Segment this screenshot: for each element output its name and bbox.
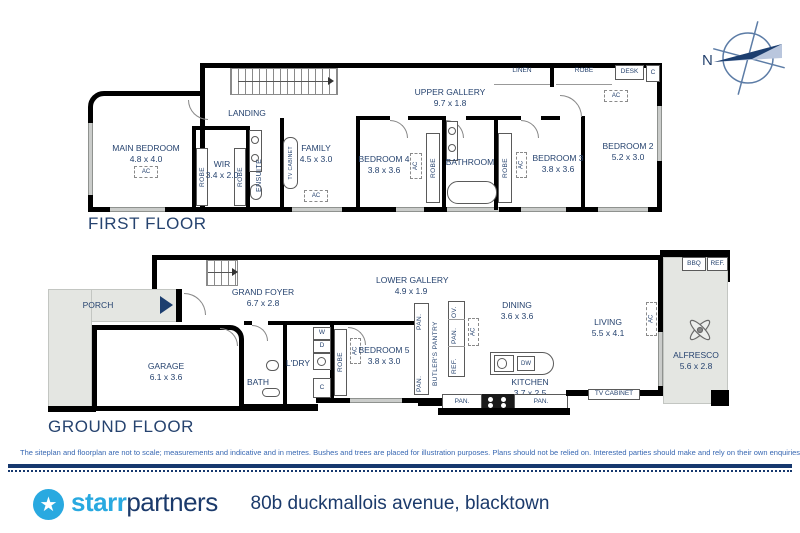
room-dims: 3.4 x 2.0 (200, 170, 244, 181)
laundry-tub-basin (317, 357, 326, 366)
wall (541, 116, 560, 120)
ac-unit: AC (468, 318, 479, 346)
wall (660, 250, 730, 257)
room-label-lower-gallery: LOWER GALLERY 4.9 x 1.9 (376, 275, 446, 296)
room-name: BEDROOM 5 (352, 345, 416, 356)
pan-label: PAN. (451, 322, 458, 344)
star-icon: ★ (40, 495, 58, 515)
closet-front (556, 84, 612, 85)
room-label-family: FAMILY 4.5 x 3.0 (286, 143, 346, 164)
starr-partners-logo-icon: ★ (33, 489, 64, 520)
wall (192, 126, 250, 130)
window (88, 123, 93, 195)
wall (438, 408, 570, 415)
room-label-wir: WIR 3.4 x 2.0 (200, 159, 244, 180)
window (110, 207, 165, 212)
room-label-porch: PORCH (70, 300, 126, 311)
room-label-grand-foyer: GRAND FOYER 6.7 x 2.8 (228, 287, 298, 308)
shelf-divider (448, 319, 465, 320)
robe-label: ROBE (430, 158, 437, 178)
robe-label: ROBE (502, 158, 509, 178)
room-dims: 4.8 x 4.0 (96, 154, 196, 165)
room-name: KITCHEN (498, 377, 562, 388)
wall (408, 116, 442, 120)
burner (501, 397, 506, 402)
bedroom5-robe: ROBE (334, 329, 347, 396)
property-address: 80b duckmallois avenue, blacktown (230, 493, 570, 515)
bbq: BBQ (682, 257, 706, 271)
room-label-landing: LANDING (217, 108, 277, 119)
room-label-ensuite: ENSUITE (256, 132, 263, 192)
tv-cabinet-gf: TV CABINET (588, 389, 640, 400)
window (598, 207, 648, 212)
c-label: C (320, 385, 325, 392)
bathtub (447, 181, 497, 204)
pan-label: PAN. (416, 368, 423, 392)
linen-label: LINEN (494, 68, 550, 75)
pan-label: PAN. (534, 399, 549, 406)
wall (466, 116, 521, 120)
burner (488, 397, 493, 402)
entry-arrow (160, 296, 173, 314)
oven-label: OV. (451, 303, 458, 318)
room-name: ALFRESCO (666, 350, 726, 361)
window (521, 207, 566, 212)
compass: N (702, 16, 792, 98)
room-label-bath: BATH (240, 377, 276, 388)
room-label-living: LIVING 5.5 x 4.1 (580, 317, 636, 338)
footer-rule-dotted (8, 470, 792, 472)
stairs-arrow (232, 268, 238, 276)
room-label-ldry: L'DRY (283, 358, 313, 369)
room-label-alfresco: ALFRESCO 5.6 x 2.8 (666, 350, 726, 371)
bedroom3-robe: ROBE (498, 133, 512, 203)
room-label-main-bedroom: MAIN BEDROOM 4.8 x 4.0 (96, 143, 196, 164)
room-label-bedroom4: BEDROOM 4 3.8 x 3.6 (355, 154, 413, 175)
w-label: W (319, 330, 325, 337)
desk-label: DESK (621, 69, 639, 76)
ac-unit: AC (304, 190, 328, 202)
room-label-bedroom3: BEDROOM 3 3.8 x 3.6 (530, 153, 586, 174)
brand-partners: partners (126, 487, 217, 517)
ref-label: REF. (710, 261, 724, 268)
room-name: GRAND FOYER (228, 287, 298, 298)
closet-c: C (313, 378, 331, 398)
sink-bowl (497, 358, 507, 369)
floorplan-page: N ROBE ROBE ROBE ROBE LINEN ROBE DESK C (0, 0, 800, 533)
compass-graphic (702, 16, 792, 98)
room-dims: 3.8 x 3.6 (355, 165, 413, 176)
room-name: BEDROOM 2 (596, 141, 660, 152)
room-dims: 3.6 x 3.6 (490, 311, 544, 322)
tv-cabinet-label: TV CABINET (595, 391, 633, 398)
stairs-direction-line (238, 81, 330, 82)
room-dims: 3.8 x 3.0 (352, 356, 416, 367)
room-name: DINING (490, 300, 544, 311)
room-name: LOWER GALLERY (376, 275, 446, 286)
ac-unit: AC (134, 166, 158, 178)
wall (360, 116, 390, 120)
pan-label: PAN. (416, 306, 423, 330)
stairs-arrow (328, 77, 334, 85)
desk: DESK (615, 65, 644, 80)
closet-front (494, 84, 550, 85)
room-name: WIR (200, 159, 244, 170)
washer-cupboard: W (313, 327, 331, 340)
ac-unit: AC (646, 302, 657, 336)
c-label: C (651, 70, 656, 77)
window (396, 207, 424, 212)
wall (48, 406, 96, 412)
wall (711, 390, 729, 406)
door-arc (252, 325, 268, 341)
d-label: D (320, 343, 325, 350)
room-dims: 4.5 x 3.0 (286, 154, 346, 165)
footer-rule (8, 464, 792, 468)
room-dims: 6.1 x 3.6 (134, 372, 198, 383)
room-label-butlers-pantry: BUTLER'S PANTRY (432, 312, 439, 386)
room-label-dining: DINING 3.6 x 3.6 (490, 300, 544, 321)
entry-door-arc (184, 293, 206, 315)
room-label-bathroom: BATHROOM (442, 157, 498, 168)
compass-north-label: N (702, 52, 713, 69)
window (350, 398, 402, 403)
room-name: BEDROOM 4 (355, 154, 413, 165)
room-dims: 9.7 x 1.8 (408, 98, 492, 109)
ac-unit: AC (516, 152, 527, 178)
room-dims: 5.5 x 4.1 (580, 328, 636, 339)
ref-label: REF. (451, 350, 458, 374)
bath-basin (266, 360, 279, 371)
room-dims: 5.6 x 2.8 (666, 361, 726, 372)
dryer-cupboard: D (313, 340, 331, 353)
room-name: UPPER GALLERY (408, 87, 492, 98)
room-label-garage: GARAGE 6.1 x 3.6 (134, 361, 198, 382)
wall (176, 289, 182, 322)
room-label-bedroom2: BEDROOM 2 5.2 x 3.0 (596, 141, 660, 162)
dw-label: DW (521, 361, 531, 367)
wall (244, 404, 318, 411)
room-label-upper-gallery: UPPER GALLERY 9.7 x 1.8 (408, 87, 492, 108)
shelf-divider (448, 346, 465, 347)
ac-unit: AC (604, 90, 628, 102)
stairs-direction-line (208, 272, 234, 273)
room-name: GARAGE (134, 361, 198, 372)
room-label-bedroom5: BEDROOM 5 3.8 x 3.0 (352, 345, 416, 366)
first-floor-title: FIRST FLOOR (88, 214, 207, 234)
robe-label: ROBE (337, 352, 344, 372)
room-dims: 3.8 x 3.6 (530, 164, 586, 175)
vanity-basin (448, 127, 456, 135)
ground-floor-title: GROUND FLOOR (48, 417, 194, 437)
bedroom4-robe: ROBE (426, 133, 440, 203)
disclaimer-text: The siteplan and floorplan are not to sc… (20, 448, 780, 457)
brand-starr: starr (71, 487, 126, 517)
wall (550, 63, 554, 87)
room-dims: 6.7 x 2.8 (228, 298, 298, 309)
room-name: MAIN BEDROOM (96, 143, 196, 154)
bbq-label: BBQ (687, 261, 701, 268)
room-name: LIVING (580, 317, 636, 328)
pan-label: PAN. (455, 399, 470, 406)
robe-top-label: ROBE (556, 68, 612, 75)
dishwasher: DW (517, 356, 535, 371)
vanity-basin (448, 144, 456, 152)
room-name: BEDROOM 3 (530, 153, 586, 164)
starr-partners-logo: starrpartners (71, 487, 218, 518)
window (292, 207, 342, 212)
window (447, 207, 499, 212)
closet-c: C (646, 65, 660, 82)
alfresco-fridge: REF. (707, 257, 728, 271)
room-dims: 5.2 x 3.0 (596, 152, 660, 163)
wall (152, 255, 157, 291)
ceiling-fan-icon (684, 314, 716, 346)
room-name: FAMILY (286, 143, 346, 154)
room-dims: 4.9 x 1.9 (376, 286, 446, 297)
bath-tub-small (262, 388, 280, 397)
